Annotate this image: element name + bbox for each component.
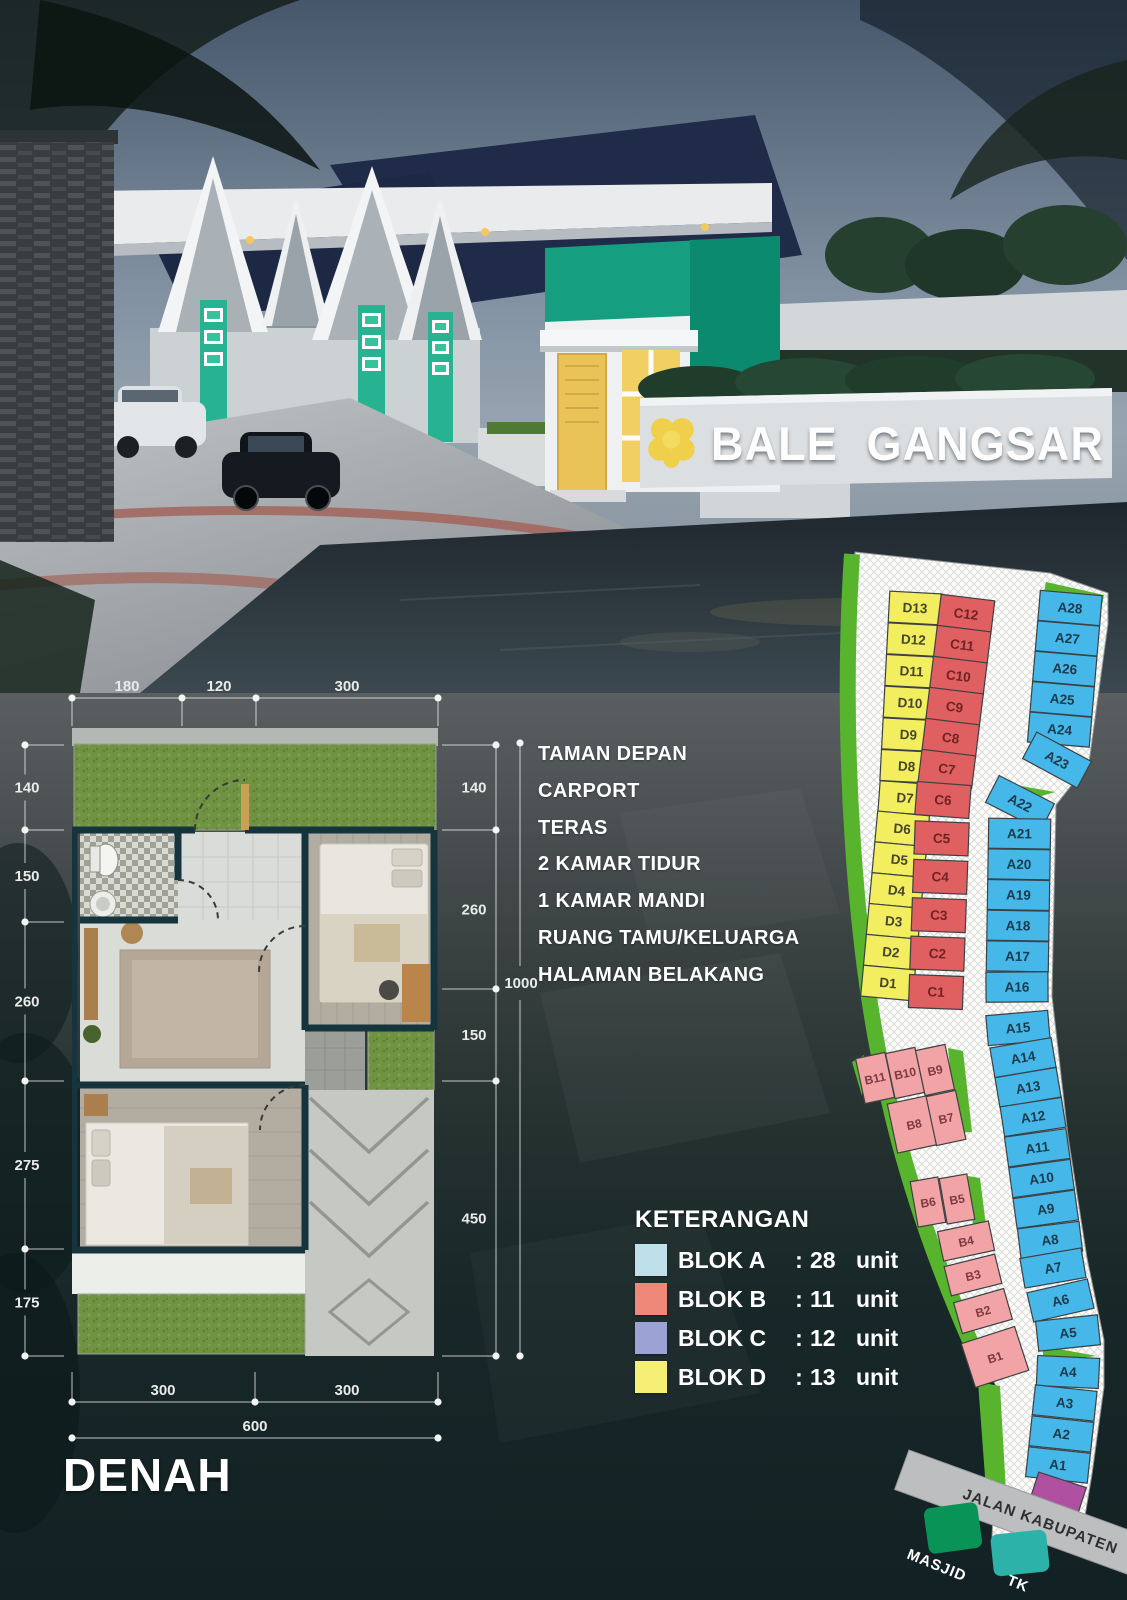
reflection <box>710 598 1010 626</box>
legend-rows: BLOK A:28unitBLOK B:11unitBLOK C:12unitB… <box>635 1244 965 1393</box>
downlight <box>246 236 254 244</box>
legend-unit: unit <box>856 1325 898 1352</box>
legend-unit: unit <box>856 1364 898 1391</box>
legend-label: BLOK D <box>678 1364 788 1391</box>
feature-item: 1 KAMAR MANDI <box>538 883 828 920</box>
feature-item: HALAMAN BELAKANG <box>538 957 828 994</box>
legend-count: 11 <box>810 1286 856 1313</box>
legend-separator: : <box>788 1286 810 1313</box>
legend-label: BLOK C <box>678 1325 788 1352</box>
downlight <box>481 228 489 236</box>
features-list: TAMAN DEPANCARPORTTERAS2 KAMAR TIDUR1 KA… <box>538 736 828 994</box>
legend-count: 12 <box>810 1325 856 1352</box>
legend-item: BLOK B:11unit <box>635 1283 965 1315</box>
legend-swatch <box>635 1283 667 1315</box>
feature-item: TAMAN DEPAN <box>538 736 828 773</box>
legend-swatch <box>635 1322 667 1354</box>
downlight <box>701 223 709 231</box>
poster: BALE GANGSAR <box>0 0 1127 1600</box>
stone-pillar <box>0 142 114 542</box>
legend: KETERANGAN BLOK A:28unitBLOK B:11unitBLO… <box>635 1206 965 1400</box>
feature-item: RUANG TAMU/KELUARGA <box>538 920 828 957</box>
legend-item: BLOK D:13unit <box>635 1361 965 1393</box>
legend-item: BLOK C:12unit <box>635 1322 965 1354</box>
legend-count: 13 <box>810 1364 856 1391</box>
legend-count: 28 <box>810 1247 856 1274</box>
legend-label: BLOK A <box>678 1247 788 1274</box>
legend-separator: : <box>788 1364 810 1391</box>
feature-item: TERAS <box>538 810 828 847</box>
feature-item: CARPORT <box>538 773 828 810</box>
legend-item: BLOK A:28unit <box>635 1244 965 1276</box>
clover-logo-icon <box>642 410 701 476</box>
legend-swatch <box>635 1244 667 1276</box>
page-title: DENAH <box>63 1448 232 1502</box>
legend-swatch <box>635 1361 667 1393</box>
legend-separator: : <box>788 1247 810 1274</box>
hero-render <box>0 0 1127 693</box>
pillar-cap <box>0 130 118 144</box>
legend-separator: : <box>788 1325 810 1352</box>
legend-label: BLOK B <box>678 1286 788 1313</box>
legend-title: KETERANGAN <box>635 1206 965 1234</box>
legend-unit: unit <box>856 1286 898 1313</box>
tree <box>1003 205 1127 285</box>
feature-item: 2 KAMAR TIDUR <box>538 846 828 883</box>
legend-unit: unit <box>856 1247 898 1274</box>
brand-name: BALE GANGSAR <box>711 416 1104 471</box>
brand-sign: BALE GANGSAR <box>642 400 1120 486</box>
